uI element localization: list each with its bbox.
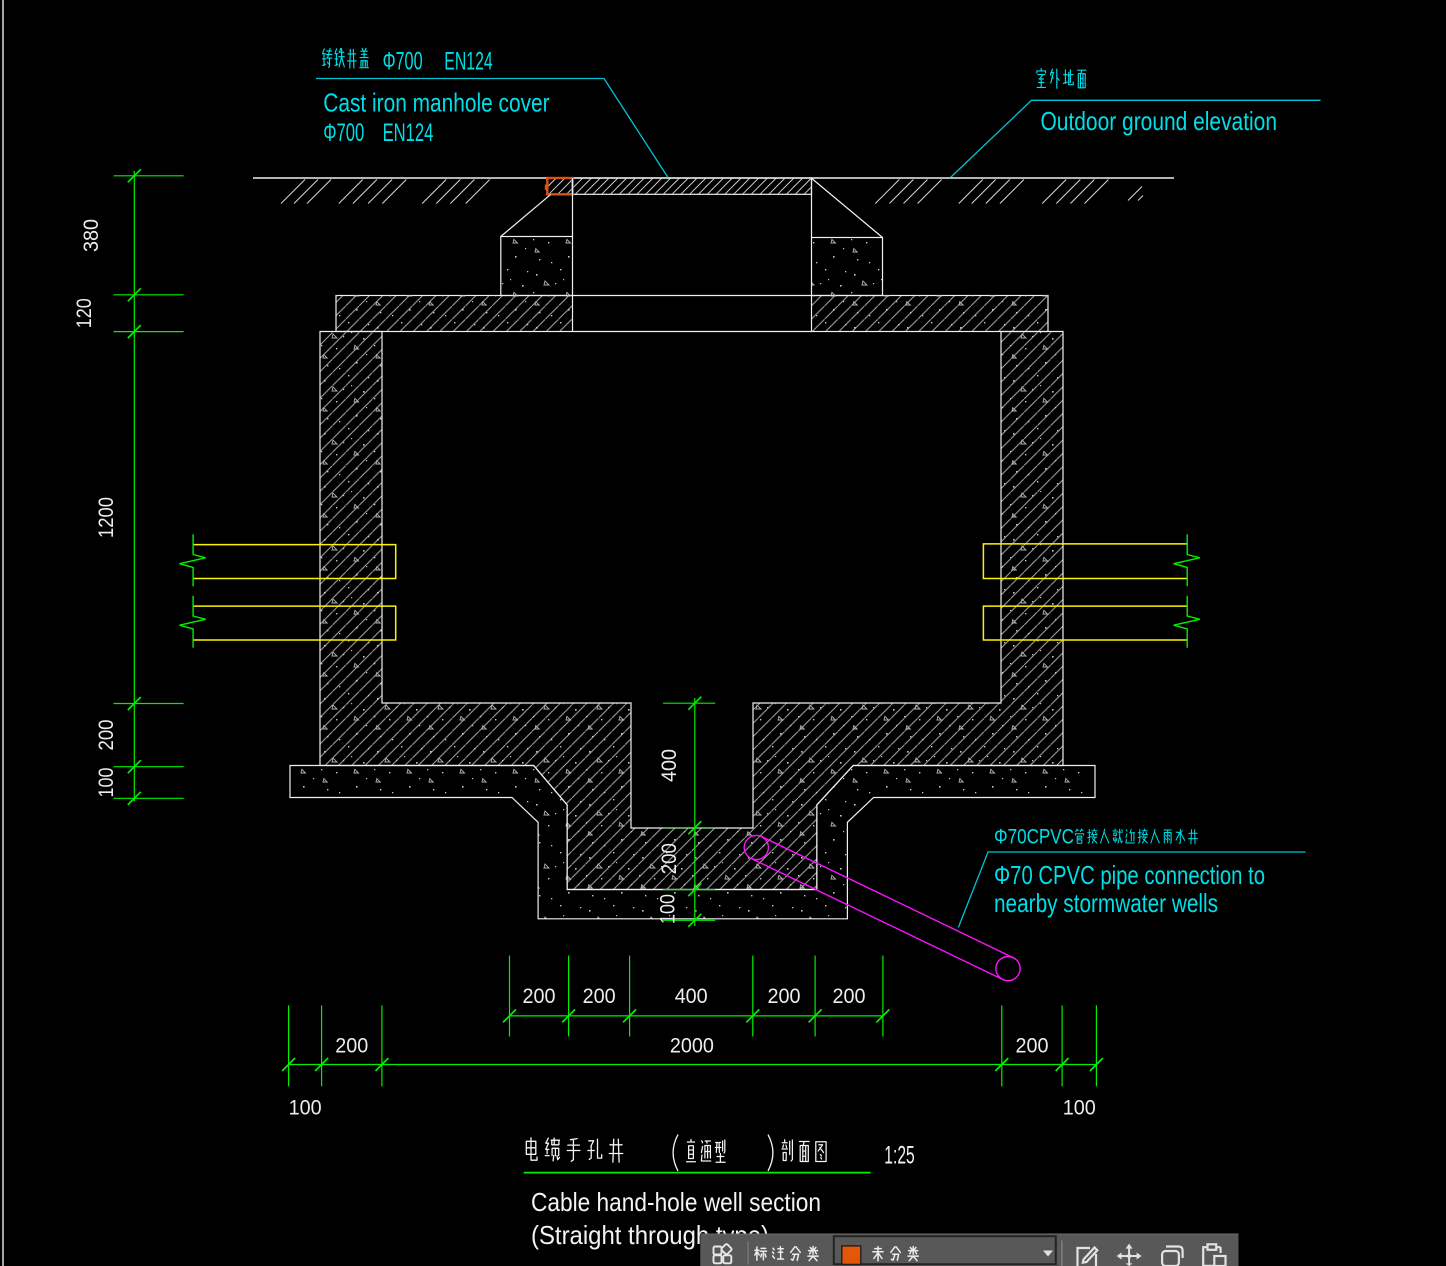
svg-text:Φ70CPVC: Φ70CPVC bbox=[994, 826, 1074, 849]
svg-text:2000: 2000 bbox=[670, 1034, 714, 1057]
svg-text:200: 200 bbox=[768, 985, 801, 1008]
svg-text:Φ70 CPVC pipe connection to: Φ70 CPVC pipe connection to bbox=[994, 860, 1265, 890]
svg-text:200: 200 bbox=[335, 1034, 368, 1057]
svg-text:120: 120 bbox=[73, 298, 96, 328]
svg-text:200: 200 bbox=[1016, 1034, 1049, 1057]
svg-text:200: 200 bbox=[833, 985, 866, 1008]
svg-text:100: 100 bbox=[1063, 1097, 1096, 1120]
svg-text:EN124: EN124 bbox=[383, 119, 434, 147]
svg-text:100: 100 bbox=[289, 1097, 322, 1120]
svg-text:200: 200 bbox=[583, 985, 616, 1008]
svg-text:Φ700: Φ700 bbox=[383, 48, 423, 76]
svg-text:100: 100 bbox=[657, 894, 680, 924]
svg-text:EN124: EN124 bbox=[444, 48, 492, 76]
svg-text:1200: 1200 bbox=[95, 497, 118, 538]
svg-text:Outdoor ground elevation: Outdoor ground elevation bbox=[1041, 106, 1278, 136]
svg-text:100: 100 bbox=[95, 768, 118, 798]
svg-text:200: 200 bbox=[95, 720, 118, 751]
svg-text:Cable hand-hole well section: Cable hand-hole well section bbox=[531, 1187, 821, 1217]
svg-text:Cast iron manhole cover: Cast iron manhole cover bbox=[323, 88, 550, 118]
svg-text:200: 200 bbox=[658, 843, 681, 874]
svg-text:Φ700: Φ700 bbox=[323, 119, 364, 147]
svg-text:nearby stormwater wells: nearby stormwater wells bbox=[994, 888, 1218, 918]
svg-text:400: 400 bbox=[675, 985, 708, 1008]
svg-text:1:25: 1:25 bbox=[884, 1142, 914, 1170]
svg-text:200: 200 bbox=[523, 985, 556, 1008]
svg-text:380: 380 bbox=[80, 219, 103, 252]
svg-text:400: 400 bbox=[658, 749, 681, 782]
